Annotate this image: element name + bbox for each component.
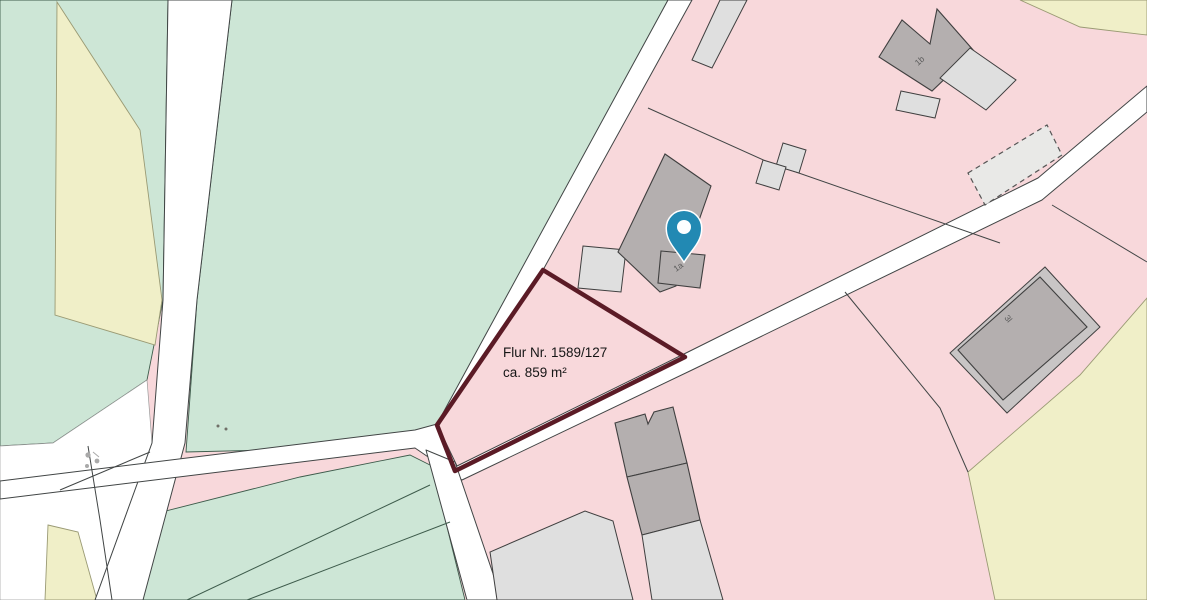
field-dot bbox=[225, 428, 228, 431]
cadastral-map[interactable]: Flur Nr. 1589/127 ca. 859 m² 1b 1a 3l bbox=[0, 0, 1200, 600]
scrub-symbol bbox=[85, 464, 89, 468]
field-dot bbox=[217, 425, 220, 428]
map-canvas: Flur Nr. 1589/127 ca. 859 m² 1b 1a 3l bbox=[0, 0, 1200, 600]
map-pin-hole bbox=[677, 220, 691, 234]
scrub-symbol bbox=[95, 459, 100, 464]
parcel-label-line2: ca. 859 m² bbox=[503, 365, 567, 380]
map-margin bbox=[1147, 0, 1200, 600]
parcel-label-line1: Flur Nr. 1589/127 bbox=[503, 345, 607, 360]
scrub-symbol bbox=[85, 452, 90, 457]
